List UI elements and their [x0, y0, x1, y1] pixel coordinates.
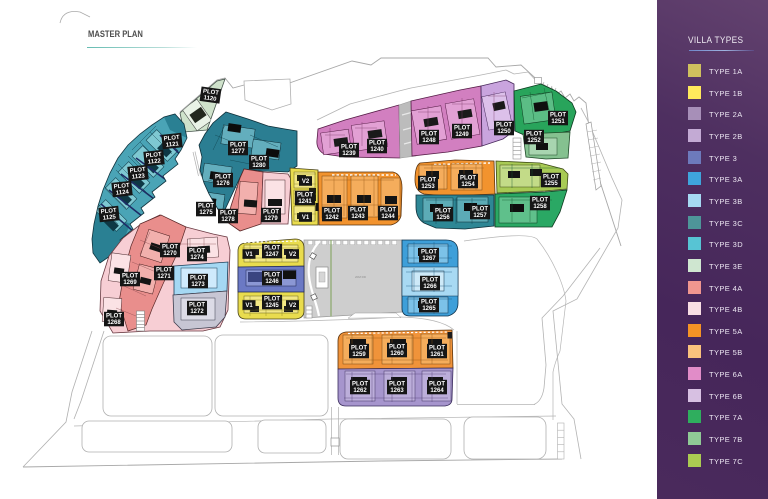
svg-text:V2: V2: [289, 252, 297, 258]
svg-text:PLOT: PLOT: [389, 345, 405, 351]
svg-text:PLOT: PLOT: [162, 245, 178, 251]
svg-text:PLOT: PLOT: [198, 204, 214, 210]
svg-text:PLOT: PLOT: [230, 143, 246, 149]
svg-text:PLOT: PLOT: [264, 246, 280, 252]
svg-text:PLOT: PLOT: [341, 145, 357, 151]
svg-text:V1: V1: [245, 303, 253, 309]
svg-text:1248: 1248: [422, 138, 436, 144]
svg-text:1260: 1260: [390, 351, 404, 357]
svg-text:PLOT: PLOT: [435, 209, 451, 215]
svg-text:1252: 1252: [527, 138, 541, 144]
svg-text:1265: 1265: [422, 306, 436, 312]
svg-text:1258: 1258: [533, 204, 547, 210]
svg-text:1273: 1273: [191, 282, 205, 288]
svg-text:PLOT: PLOT: [550, 113, 566, 119]
svg-text:PLOT: PLOT: [472, 207, 488, 213]
svg-text:1243: 1243: [351, 214, 365, 220]
svg-text:1267: 1267: [422, 256, 436, 262]
svg-text:1264: 1264: [430, 388, 444, 394]
svg-text:PLOT: PLOT: [190, 276, 206, 282]
svg-text:1256: 1256: [436, 215, 450, 221]
svg-text:PLOT: PLOT: [422, 278, 438, 284]
svg-text:PLOT: PLOT: [263, 210, 279, 216]
svg-text:1253: 1253: [421, 184, 435, 190]
svg-text:1272: 1272: [190, 309, 204, 315]
svg-text:20M RD: 20M RD: [355, 275, 367, 279]
svg-text:V2: V2: [302, 179, 310, 185]
svg-text:PLOT: PLOT: [389, 382, 405, 388]
svg-text:PLOT: PLOT: [106, 314, 122, 320]
svg-text:PLOT: PLOT: [351, 346, 367, 352]
svg-text:PLOT: PLOT: [421, 250, 437, 256]
svg-text:1266: 1266: [423, 284, 437, 290]
svg-text:V1: V1: [302, 215, 310, 221]
svg-text:PLOT: PLOT: [189, 249, 205, 255]
svg-text:1257: 1257: [473, 213, 487, 219]
svg-text:PLOT: PLOT: [532, 198, 548, 204]
svg-text:1239: 1239: [342, 151, 356, 157]
svg-text:1247: 1247: [265, 252, 279, 258]
svg-text:PLOT: PLOT: [543, 175, 559, 181]
svg-text:1259: 1259: [352, 352, 366, 358]
svg-text:1274: 1274: [190, 255, 204, 261]
svg-text:PLOT: PLOT: [420, 178, 436, 184]
svg-text:1241: 1241: [298, 199, 312, 205]
svg-text:PLOT: PLOT: [324, 209, 340, 215]
svg-text:1249: 1249: [455, 132, 469, 138]
svg-text:PLOT: PLOT: [189, 303, 205, 309]
svg-text:PLOT: PLOT: [251, 157, 267, 163]
svg-text:1240: 1240: [370, 147, 384, 153]
svg-text:PLOT: PLOT: [352, 382, 368, 388]
svg-text:V2: V2: [289, 303, 297, 309]
svg-text:1270: 1270: [163, 251, 177, 257]
svg-text:1275: 1275: [199, 210, 213, 216]
svg-text:1276: 1276: [216, 181, 230, 187]
svg-text:1271: 1271: [157, 274, 171, 280]
svg-text:PLOT: PLOT: [264, 273, 280, 279]
svg-text:1246: 1246: [265, 279, 279, 285]
svg-text:1278: 1278: [221, 217, 235, 223]
svg-text:PLOT: PLOT: [496, 123, 512, 129]
svg-text:PLOT: PLOT: [264, 297, 280, 303]
svg-text:1254: 1254: [461, 182, 475, 188]
svg-text:1251: 1251: [551, 119, 565, 125]
svg-text:V1: V1: [245, 252, 253, 258]
svg-text:1244: 1244: [381, 214, 395, 220]
svg-text:PLOT: PLOT: [369, 141, 385, 147]
svg-text:1268: 1268: [107, 320, 121, 326]
svg-text:1245: 1245: [265, 303, 279, 309]
svg-text:1280: 1280: [252, 163, 266, 169]
svg-text:PLOT: PLOT: [220, 211, 236, 217]
svg-text:1277: 1277: [231, 149, 245, 155]
svg-text:PLOT: PLOT: [350, 208, 366, 214]
svg-text:PLOT: PLOT: [122, 274, 138, 280]
svg-text:PLOT: PLOT: [421, 300, 437, 306]
svg-text:PLOT: PLOT: [156, 268, 172, 274]
svg-text:PLOT: PLOT: [421, 132, 437, 138]
svg-text:1263: 1263: [390, 388, 404, 394]
svg-text:1279: 1279: [264, 216, 278, 222]
svg-text:1255: 1255: [544, 181, 558, 187]
svg-text:PLOT: PLOT: [429, 346, 445, 352]
svg-text:1242: 1242: [325, 215, 339, 221]
svg-text:1250: 1250: [497, 129, 511, 135]
svg-text:PLOT: PLOT: [429, 382, 445, 388]
svg-text:1269: 1269: [123, 280, 137, 286]
svg-text:PLOT: PLOT: [526, 132, 542, 138]
svg-text:PLOT: PLOT: [215, 175, 231, 181]
svg-text:PLOT: PLOT: [297, 193, 313, 199]
svg-text:PLOT: PLOT: [380, 208, 396, 214]
svg-text:PLOT: PLOT: [460, 176, 476, 182]
svg-text:PLOT: PLOT: [454, 126, 470, 132]
svg-text:1261: 1261: [430, 352, 444, 358]
svg-text:1262: 1262: [353, 388, 367, 394]
